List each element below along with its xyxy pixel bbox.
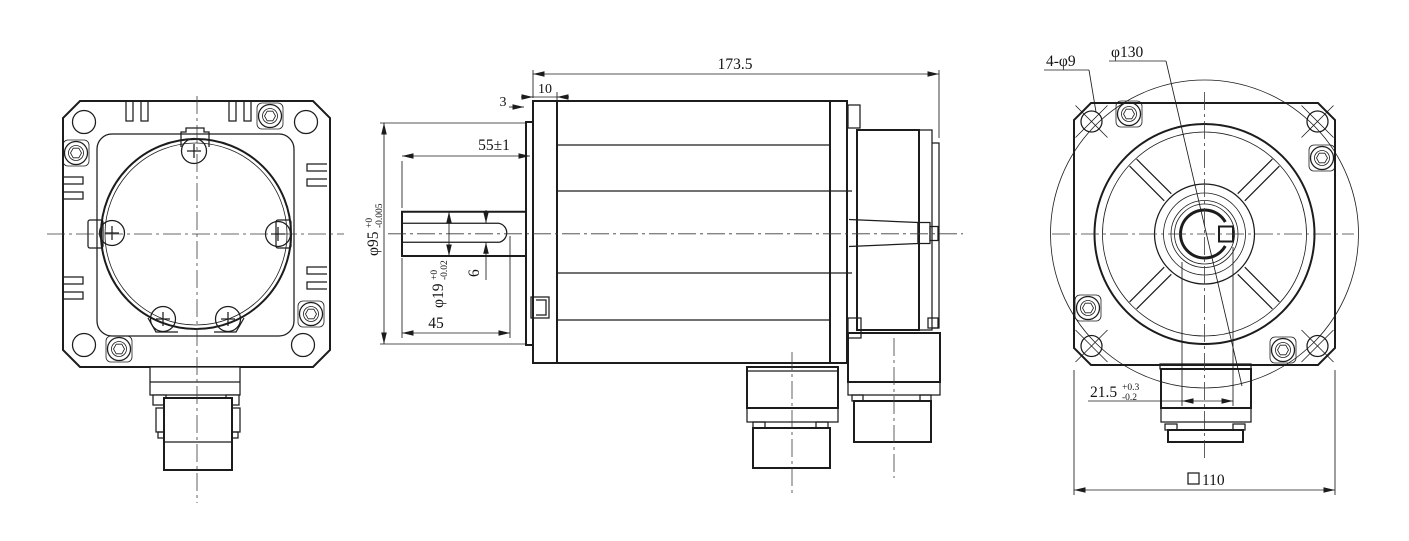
hex-screw-icon — [106, 336, 132, 362]
hex-screw-icon — [63, 140, 89, 166]
dim-label-key-height: 21.5 — [1090, 384, 1117, 401]
body-fin-lines — [557, 145, 852, 320]
hex-screw-icon — [1309, 145, 1335, 171]
dim-spigot-step: 3 — [500, 95, 525, 110]
power-connector — [747, 352, 838, 494]
phillips-screw-icon — [182, 139, 207, 164]
dim-label-spigot-step: 3 — [500, 95, 507, 110]
fin-slots — [63, 101, 327, 299]
hex-screw-icon — [257, 103, 283, 129]
front-connector — [1160, 364, 1251, 442]
motor-body — [557, 101, 830, 363]
front-flange — [533, 101, 557, 363]
dim-label-bolt-circle: φ130 — [1111, 44, 1143, 61]
hex-screw-icon — [1075, 295, 1101, 321]
dim-label-spigot-tol-lower: -0.005 — [375, 203, 385, 228]
dim-label-spigot-dia: φ95 — [365, 231, 382, 256]
rear-ring — [830, 101, 847, 363]
technical-drawing-page: 173.5 10 3 55±1 φ95 +0 -0.005 φ19 +0 -0.… — [0, 0, 1409, 541]
rear-view — [47, 96, 344, 503]
mount-hole — [73, 334, 96, 357]
dim-label-shaft-tol-upper: +0 — [430, 270, 440, 280]
encoder-connector — [848, 333, 940, 478]
mount-hole — [292, 334, 315, 357]
mount-hole — [295, 111, 318, 134]
dim-label-flange-thickness: 10 — [538, 82, 552, 97]
keyway-outline — [402, 223, 507, 242]
front-view: 4-φ9 φ130 21.5 +0.3 -0.2 110 — [1044, 44, 1359, 495]
dim-overall-length: 173.5 — [533, 56, 939, 138]
dim-label-overall-length: 173.5 — [718, 56, 753, 73]
dim-label-mounting-holes: 4-φ9 — [1046, 53, 1076, 70]
dim-label-key-length: 45 — [428, 315, 444, 332]
dim-label-key-height-tol-upper: +0.3 — [1122, 383, 1139, 393]
encoder-bottom-screw — [848, 318, 861, 338]
encoder-cover — [919, 130, 939, 330]
dim-shaft-dia: φ19 +0 -0.02 — [430, 212, 450, 308]
dim-key-width: 6 — [466, 210, 486, 280]
rear-housing — [97, 134, 294, 336]
dim-flange-thickness: 10 — [521, 82, 569, 100]
square-symbol — [1188, 473, 1199, 484]
encoder-coupling — [849, 220, 918, 247]
drawing-canvas: 173.5 10 3 55±1 φ95 +0 -0.005 φ19 +0 -0.… — [0, 0, 1409, 541]
side-view: 173.5 10 3 55±1 φ95 +0 -0.005 φ19 +0 -0.… — [365, 56, 963, 494]
mount-hole-icon — [1076, 106, 1108, 138]
hex-screw-icon — [298, 301, 324, 327]
dim-key-length: 45 — [402, 236, 510, 338]
dim-shaft-length: 55±1 — [402, 137, 530, 208]
mount-hole-icon — [1302, 330, 1334, 362]
hex-screw-icon — [1270, 337, 1296, 363]
encoder-housing — [857, 130, 919, 330]
dim-label-shaft-dia: φ19 — [430, 283, 447, 308]
encoder-top-screw — [848, 105, 860, 128]
dim-label-flange-size: 110 — [1202, 472, 1225, 489]
rear-connector — [150, 367, 240, 470]
dim-label-key-height-tol-lower: -0.2 — [1122, 393, 1137, 403]
dim-mounting-holes: 4-φ9 — [1044, 53, 1096, 112]
mount-hole-icon — [1302, 106, 1334, 138]
mount-hole — [73, 111, 96, 134]
encoder-cover-foot — [928, 318, 938, 328]
dim-label-shaft-tol-lower: -0.02 — [440, 260, 450, 280]
dim-label-shaft-length: 55±1 — [478, 137, 510, 154]
dim-label-spigot-tol-upper: +0 — [365, 218, 375, 228]
mount-hole-icon — [1076, 330, 1108, 362]
dim-label-key-width: 6 — [466, 269, 483, 277]
